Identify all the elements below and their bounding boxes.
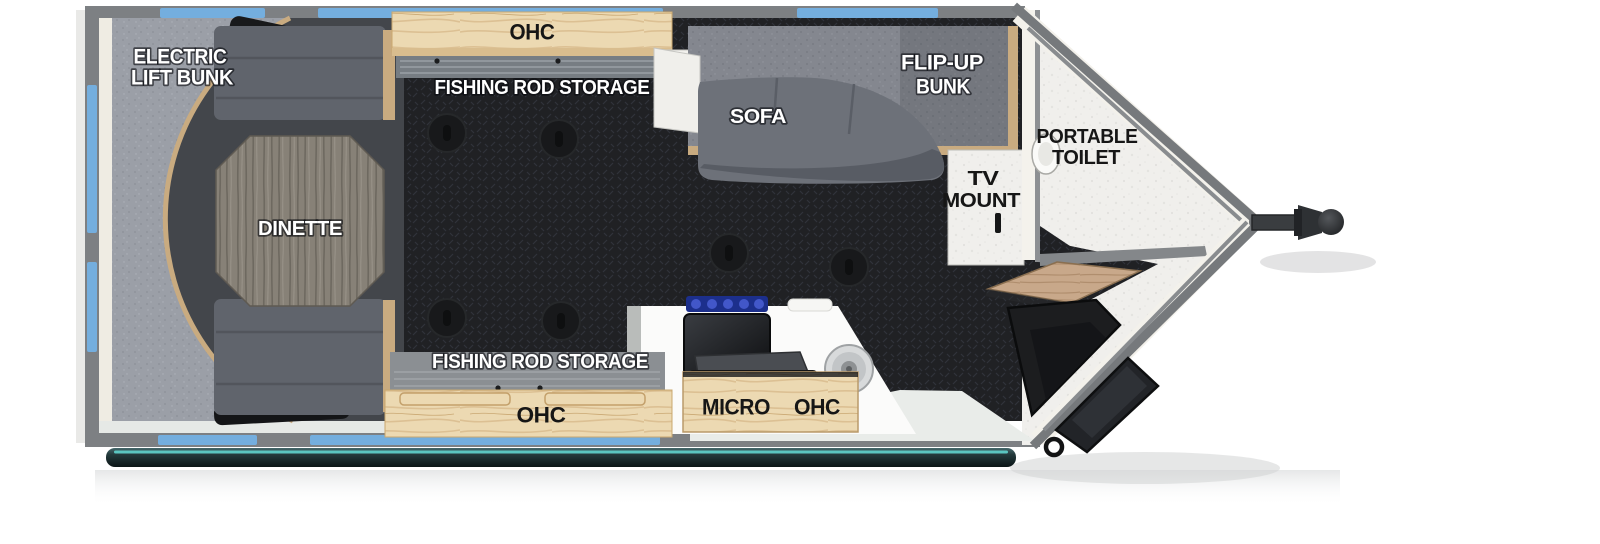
label-portable-toilet-1: PORTABLE	[1037, 126, 1138, 148]
window-left-2	[87, 262, 97, 352]
window-top-3	[797, 8, 938, 18]
label-sofa: SOFA	[730, 106, 786, 128]
window-left-1	[87, 85, 97, 233]
door-shadow	[1010, 452, 1280, 484]
label-electric-lift-bunk-2: LIFT BUNK	[131, 67, 233, 90]
awning-roller	[106, 448, 1016, 467]
label-micro: MICRO	[702, 395, 770, 420]
floorplan-page: ELECTRIC LIFT BUNK OHC FISHING ROD STORA…	[0, 0, 1600, 544]
label-electric-lift-bunk-1: ELECTRIC	[134, 46, 227, 69]
rod-holder-dot	[434, 58, 439, 63]
awning-highlight-line	[114, 451, 1008, 454]
hitch-shadow	[1260, 251, 1376, 273]
label-ohc-top: OHC	[510, 20, 555, 45]
left-lining	[99, 18, 112, 430]
hitch-ball-knob	[1318, 209, 1344, 235]
sofa-armrest-panel	[654, 48, 700, 133]
window-bottom-1	[158, 435, 257, 445]
label-micro-ohc: OHC	[794, 395, 840, 420]
safety-chain-ring	[1046, 439, 1062, 455]
label-portable-toilet-2: TOILET	[1052, 147, 1120, 169]
label-fishing-rod-top: FISHING ROD STORAGE	[435, 77, 650, 99]
tv-bracket-icon	[995, 213, 1001, 233]
trailer-hitch	[1252, 205, 1344, 240]
left-end-cap	[76, 10, 85, 443]
toilet-room-wall	[1022, 10, 1037, 260]
hitch-notch	[1294, 209, 1302, 236]
flip-bunk-trim-right	[1008, 26, 1018, 155]
label-tv-mount-1: TV	[968, 168, 1000, 190]
micro-cabinet-shadow-edge	[683, 372, 858, 377]
ohc-top-lip	[392, 48, 672, 56]
label-flip-up-bunk-1: FLIP-UP	[901, 52, 983, 75]
counter-vent	[788, 299, 832, 311]
dinette-bench-bottom	[214, 299, 386, 415]
label-flip-up-bunk-2: BUNK	[916, 76, 970, 99]
window-top-1	[160, 8, 265, 18]
floorplan-diagram: ELECTRIC LIFT BUNK OHC FISHING ROD STORA…	[0, 0, 1600, 544]
label-ohc-bottom: OHC	[517, 403, 567, 428]
rod-holder-dot	[555, 58, 560, 63]
label-fishing-rod-bottom: FISHING ROD STORAGE	[432, 351, 648, 373]
label-tv-mount-2: MOUNT	[942, 190, 1020, 212]
dinette-bench-top	[214, 26, 386, 120]
label-dinette: DINETTE	[258, 218, 342, 240]
